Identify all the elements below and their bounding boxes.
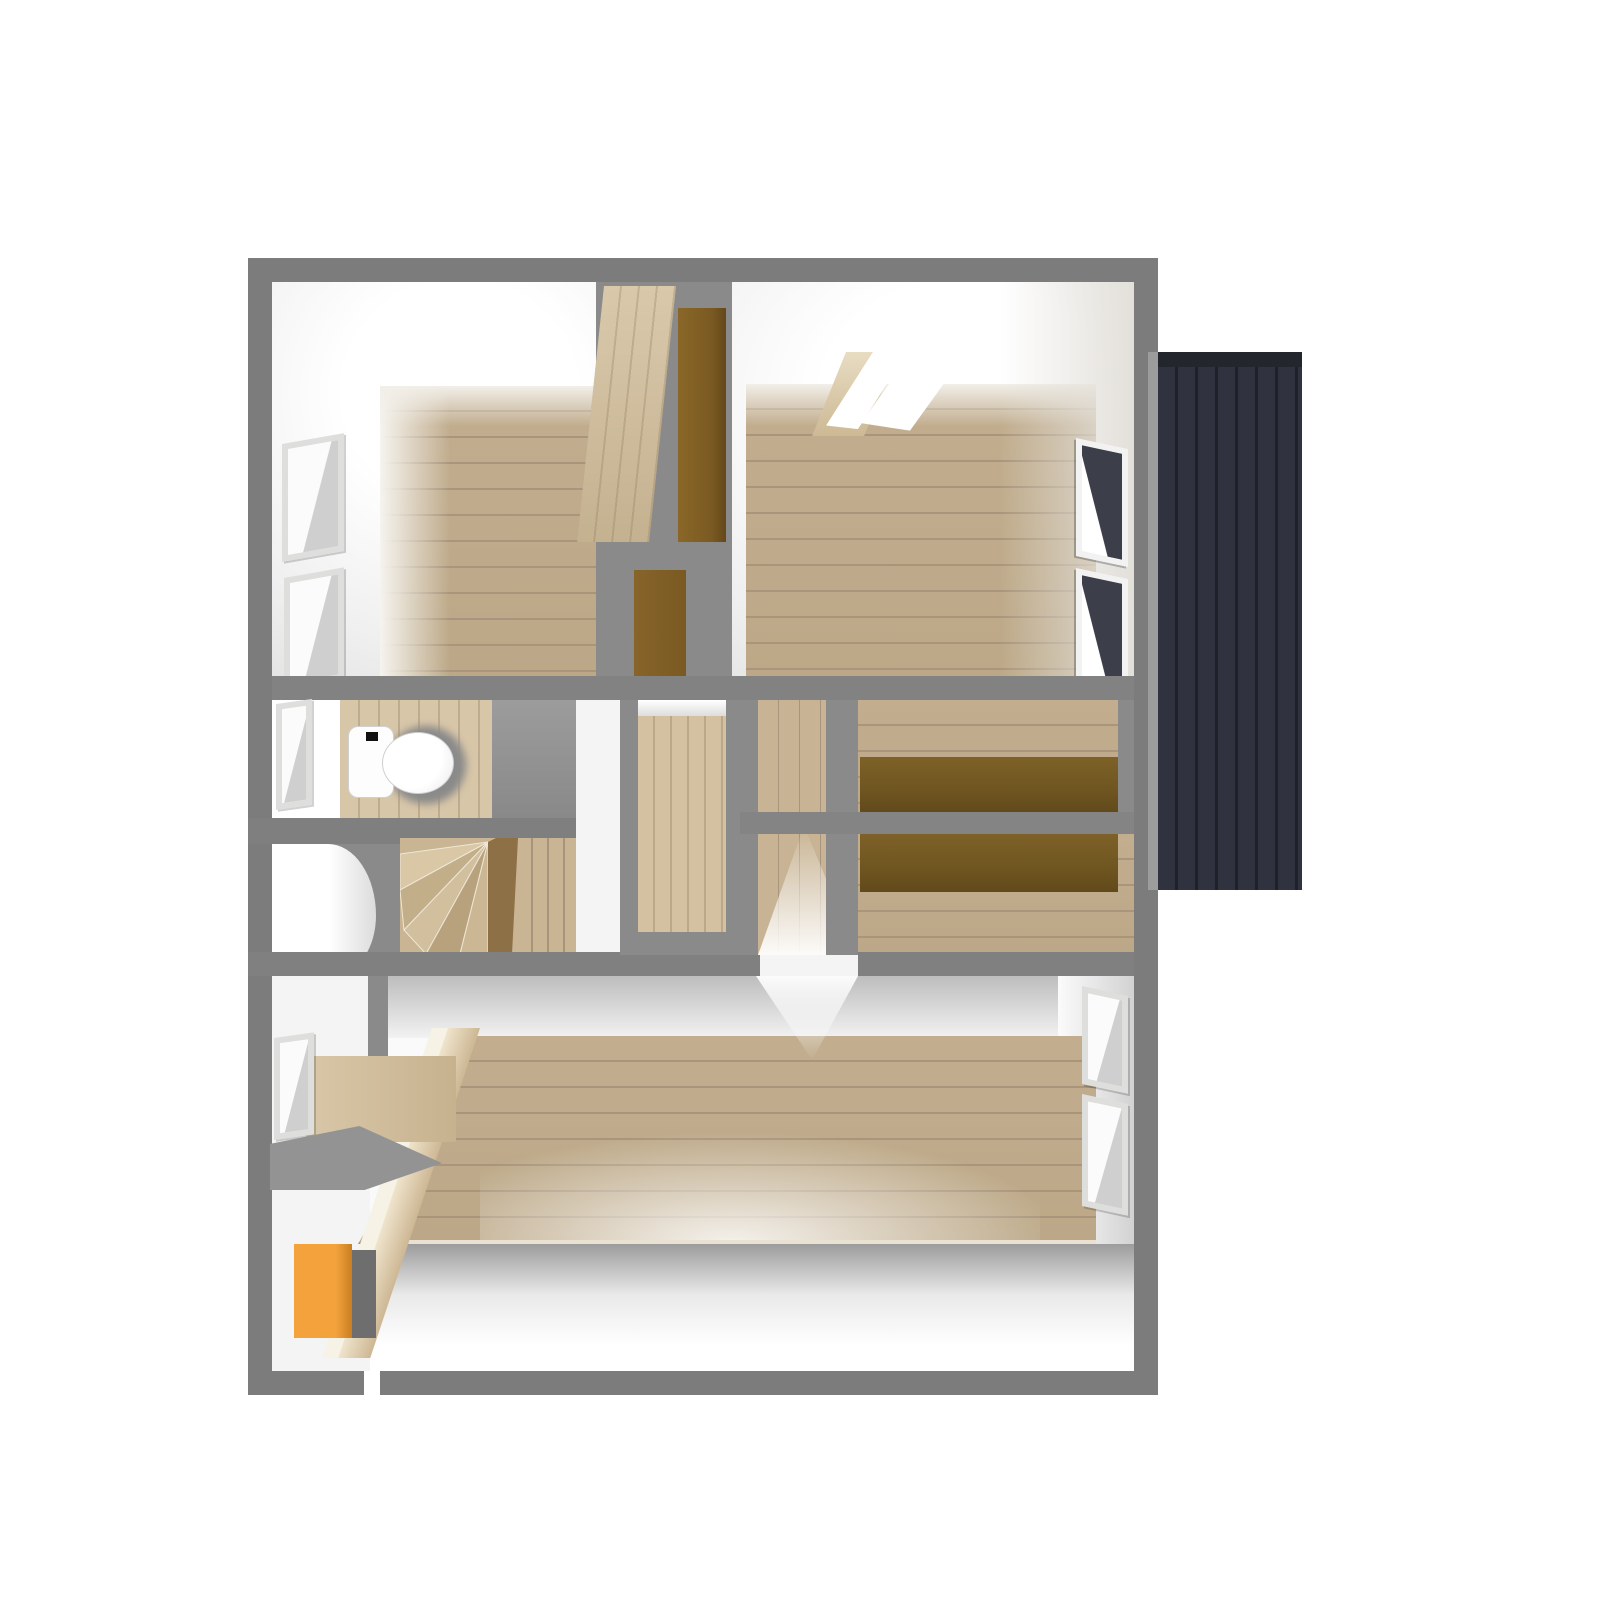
desk-b xyxy=(860,834,1118,892)
outer-wall-deck-highlight xyxy=(1148,352,1158,890)
desk-a xyxy=(860,757,1118,813)
alcove-top-trim xyxy=(638,700,726,716)
bedroom-top-left-ceilglow xyxy=(380,386,596,426)
nook-back-panel xyxy=(306,1056,456,1142)
alcove-back-panel xyxy=(638,706,726,932)
window-nook xyxy=(274,1032,314,1140)
floorplan-render-viewport[interactable] xyxy=(0,0,1600,1600)
window-main-right-lower xyxy=(1082,1094,1128,1216)
toilet-flush-button xyxy=(366,732,378,741)
wall-band-mid-right xyxy=(858,952,1134,976)
orange-cabinet-shadow xyxy=(352,1250,376,1338)
nook-wall-strip xyxy=(368,976,388,1062)
wall-band-mid-left xyxy=(248,952,760,976)
wardrobe-lower-door xyxy=(634,570,686,682)
bedroom-top-left-wall-glow xyxy=(380,386,450,676)
toilet-bowl xyxy=(382,732,454,794)
outer-wall-top xyxy=(248,258,1158,282)
wardrobe-door-brown xyxy=(678,308,726,542)
winder-stairs xyxy=(400,838,576,954)
window-right-upper-dark xyxy=(1076,438,1128,567)
toilet-window xyxy=(276,699,312,810)
bottom-wall-gap xyxy=(364,1371,380,1395)
orange-cabinet xyxy=(294,1244,352,1338)
wall-band-upper xyxy=(272,676,1134,700)
window-left-upper xyxy=(282,433,344,562)
hall-wall-right-lower xyxy=(826,834,858,955)
side-deck xyxy=(1158,352,1302,890)
main-room-floor-glow xyxy=(480,1120,1040,1244)
side-deck-header xyxy=(1158,352,1302,367)
wall-band-desk xyxy=(740,812,1134,834)
outer-wall-bottom xyxy=(248,1371,1158,1395)
window-main-right-upper xyxy=(1082,986,1128,1094)
window-left-lower xyxy=(284,567,344,690)
hall-wall-right-upper xyxy=(826,700,858,814)
main-room-lower-wallface xyxy=(370,1244,1134,1371)
main-room-top-wallfaces xyxy=(370,976,1134,1038)
